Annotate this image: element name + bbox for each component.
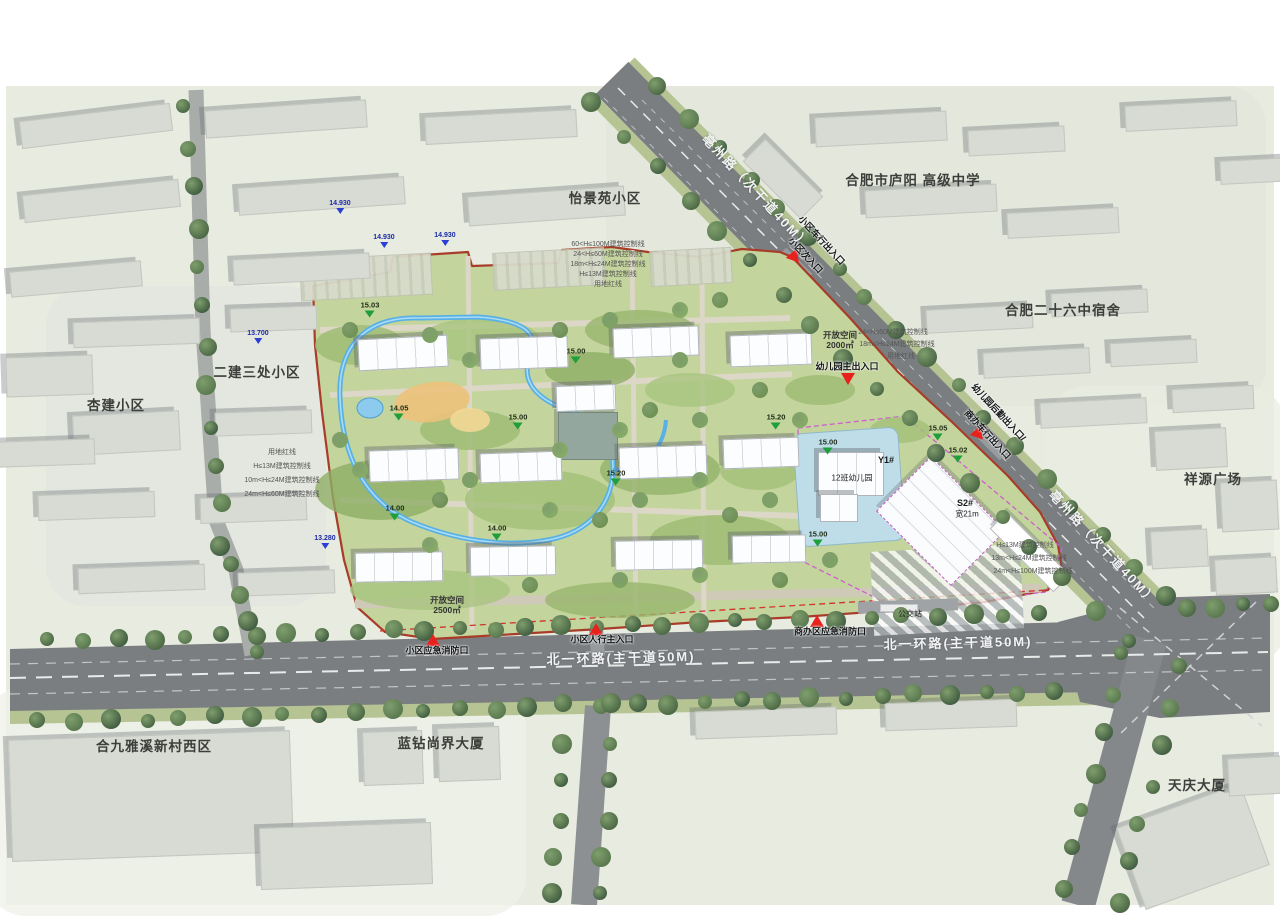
street-tree [698, 695, 712, 709]
street-tree [453, 621, 467, 635]
street-tree [870, 382, 884, 396]
elevation-marker-blue: 14.930 [329, 200, 350, 214]
elevation-marker-blue: 13.700 [247, 330, 268, 344]
road-name-label: 北一环路(主干道50M) [546, 646, 695, 668]
elevation-value: 15.00 [809, 531, 828, 539]
elevation-marker-blue: 14.930 [373, 234, 394, 248]
street-tree [679, 109, 699, 129]
context-building [237, 569, 335, 596]
elevation-marker-green: 15.03 [361, 302, 380, 318]
street-tree [462, 472, 478, 488]
street-tree [591, 847, 611, 867]
street-tree [756, 614, 772, 630]
street-tree [1236, 597, 1250, 611]
street-tree [1105, 687, 1121, 703]
street-tree [1171, 658, 1187, 674]
street-tree [996, 609, 1010, 623]
area-label: 合九雅溪新村西区 [96, 735, 212, 755]
plan-annotation: 公交站 [898, 609, 922, 620]
area-label: 祥源广场 [1184, 468, 1242, 488]
elevation-value: 15.00 [509, 414, 528, 422]
plan-annotation: Y1# [878, 455, 894, 465]
street-tree [432, 492, 448, 508]
plan-annotation: 13m<H≤24M建筑控制线 [991, 553, 1066, 563]
elevation-marker-green: 15.20 [767, 414, 786, 430]
street-tree [542, 883, 562, 903]
street-tree [551, 615, 571, 635]
street-tree [352, 462, 368, 478]
context-building [982, 347, 1090, 379]
plan-annotation: 2500㎡ [433, 604, 460, 616]
playground-area-small [450, 408, 490, 432]
residential-building [480, 451, 563, 484]
residential-building [479, 335, 568, 370]
street-tree [213, 494, 231, 512]
residential-building [470, 545, 557, 576]
site-plan-page: 15.0315.0014.0515.0014.0014.0015.2015.20… [0, 0, 1280, 905]
street-tree [332, 432, 348, 448]
context-building [0, 438, 95, 467]
street-tree [629, 694, 647, 712]
street-tree [210, 536, 230, 556]
street-tree [672, 302, 688, 318]
context-building [1109, 339, 1197, 368]
street-tree [208, 458, 224, 474]
elevation-triangle-icon [813, 539, 823, 546]
street-tree [728, 613, 742, 627]
elevation-value: 13.280 [314, 535, 335, 542]
elevation-value: 15.02 [949, 447, 968, 455]
elevation-marker-green: 14.05 [390, 405, 409, 421]
street-tree [250, 645, 264, 659]
plan-annotation: 宽21m [955, 509, 979, 520]
street-tree [762, 492, 778, 508]
street-tree [1114, 646, 1128, 660]
street-tree [692, 567, 708, 583]
street-tree [101, 709, 121, 729]
elevation-marker-green: 15.00 [509, 414, 528, 430]
street-tree [712, 292, 728, 308]
elevation-triangle-icon [394, 413, 404, 420]
elevation-marker-blue: 14.930 [434, 232, 455, 246]
elevation-value: 14.00 [386, 505, 405, 513]
elevation-value: 15.03 [361, 302, 380, 310]
street-tree [856, 289, 872, 305]
street-tree [653, 617, 671, 635]
street-tree [707, 221, 727, 241]
plan-annotation: S2# [957, 498, 973, 508]
area-label: 杏建小区 [87, 394, 145, 414]
entrance-label: 商办区应急消防口 [794, 625, 866, 638]
street-tree [752, 382, 768, 398]
street-tree [1110, 893, 1130, 913]
elevation-value: 14.930 [373, 234, 394, 241]
context-building [1171, 385, 1254, 413]
street-tree [522, 577, 538, 593]
context-building [37, 491, 155, 521]
street-tree [552, 322, 568, 338]
street-tree [960, 473, 980, 493]
context-building [5, 354, 93, 397]
street-tree [213, 626, 229, 642]
elevation-triangle-icon [571, 356, 581, 363]
street-tree [1263, 596, 1279, 612]
street-tree [552, 442, 568, 458]
elevation-value: 15.20 [607, 470, 626, 478]
street-tree [822, 552, 838, 568]
plan-annotation: 12班幼儿园 [832, 473, 873, 484]
street-tree [553, 813, 569, 829]
street-tree [601, 693, 621, 713]
street-tree [692, 472, 708, 488]
elevation-value: 14.930 [434, 232, 455, 239]
street-tree [170, 710, 186, 726]
entrance-label: 小区应急消防口 [405, 644, 468, 657]
elevation-triangle-icon [365, 310, 375, 317]
street-tree [517, 697, 537, 717]
context-building [1154, 427, 1228, 471]
street-tree [642, 402, 658, 418]
elevation-triangle-icon [336, 208, 344, 214]
elevation-marker-green: 15.02 [949, 447, 968, 463]
street-tree [1086, 764, 1106, 784]
elevation-triangle-icon [953, 455, 963, 462]
context-building [259, 822, 433, 890]
context-building [1219, 157, 1280, 185]
context-building [1227, 756, 1280, 797]
elevation-triangle-icon [933, 433, 943, 440]
street-tree [223, 556, 239, 572]
street-tree [231, 586, 249, 604]
context-building [214, 409, 312, 436]
residential-building [355, 551, 444, 583]
residential-building [732, 534, 806, 563]
street-tree [185, 177, 203, 195]
elevation-marker-green: 14.00 [488, 525, 507, 541]
area-label: 合肥市庐阳 高级中学 [845, 169, 980, 189]
residential-building [722, 437, 799, 470]
street-tree [1009, 686, 1025, 702]
area-label: 合肥二十六中宿舍 [1005, 299, 1121, 319]
elevation-marker-green: 15.00 [819, 439, 838, 455]
residential-building [368, 447, 459, 482]
plan-annotation: 24m<H≤60M建筑控制线 [244, 489, 319, 499]
area-label: 天庆大厦 [1168, 774, 1226, 794]
elevation-marker-green: 15.00 [567, 348, 586, 364]
context-building [72, 318, 200, 348]
residential-building [613, 326, 700, 359]
elevation-value: 15.00 [819, 439, 838, 447]
elevation-marker-green: 15.05 [929, 425, 948, 441]
elevation-value: 14.05 [390, 405, 409, 413]
street-tree [204, 421, 218, 435]
context-building [77, 564, 205, 594]
street-tree [593, 886, 607, 900]
street-tree [141, 714, 155, 728]
street-tree [1095, 723, 1113, 741]
context-building [967, 125, 1065, 156]
area-label: 蓝钻尚界大厦 [398, 732, 485, 752]
street-tree [772, 572, 788, 588]
street-tree [1031, 605, 1047, 621]
street-tree [801, 316, 819, 334]
street-tree [422, 327, 438, 343]
elevation-marker-green: 15.20 [607, 470, 626, 486]
street-tree [672, 352, 688, 368]
street-tree [1037, 469, 1057, 489]
street-tree [554, 694, 572, 712]
elevation-marker-green: 14.00 [386, 505, 405, 521]
street-tree [180, 141, 196, 157]
elevation-value: 14.00 [488, 525, 507, 533]
elevation-triangle-icon [823, 447, 833, 454]
plan-annotation: 60<H≤100M建筑控制线 [571, 239, 644, 249]
street-tree [275, 707, 289, 721]
street-tree [199, 338, 217, 356]
elevation-triangle-icon [254, 338, 262, 344]
street-tree [792, 412, 808, 428]
plan-annotation: H≤13M建筑控制线 [253, 461, 311, 471]
street-tree [689, 613, 709, 633]
entrance-label: 小区人行主入口 [570, 633, 633, 646]
street-tree [692, 412, 708, 428]
street-tree [194, 297, 210, 313]
elevation-triangle-icon [380, 242, 388, 248]
street-tree [1045, 682, 1063, 700]
street-tree [1152, 735, 1172, 755]
street-tree [722, 507, 738, 523]
street-tree [488, 701, 506, 719]
plan-annotation: 24<H≤60M建筑控制线 [858, 327, 927, 337]
street-tree [1146, 780, 1160, 794]
street-tree [625, 616, 641, 632]
context-building [1150, 529, 1209, 570]
entrance-triangle-icon [841, 373, 855, 385]
street-tree [178, 630, 192, 644]
plan-annotation: 用地红线 [268, 447, 296, 457]
street-tree [65, 713, 83, 731]
street-tree [40, 632, 54, 646]
street-tree [592, 512, 608, 528]
elevation-value: 14.930 [329, 200, 350, 207]
elevation-triangle-icon [492, 533, 502, 540]
street-tree [617, 130, 631, 144]
street-tree [544, 848, 562, 866]
street-tree [176, 99, 190, 113]
elevation-triangle-icon [611, 478, 621, 485]
residential-building [615, 539, 704, 571]
street-tree [929, 608, 947, 626]
road-name-label: 北一环路(主干道50M) [883, 631, 1032, 653]
street-tree [462, 352, 478, 368]
pond [357, 398, 383, 418]
context-building [1214, 556, 1278, 595]
street-tree [612, 422, 628, 438]
street-tree [658, 695, 678, 715]
street-tree [242, 707, 262, 727]
plan-annotation: 用地红线 [887, 351, 915, 361]
street-tree [632, 492, 648, 508]
area-label: 怡景苑小区 [569, 187, 642, 207]
plan-annotation: 2000㎡ [826, 339, 853, 351]
street-tree [342, 322, 358, 338]
street-tree [648, 77, 666, 95]
context-building [229, 305, 317, 332]
residential-building [729, 333, 812, 368]
street-tree [600, 812, 618, 830]
street-tree [189, 219, 209, 239]
elevation-value: 15.20 [767, 414, 786, 422]
street-tree [682, 192, 700, 210]
street-tree [964, 604, 984, 624]
street-tree [1120, 852, 1138, 870]
plan-annotation: H≤13M建筑控制线 [579, 269, 637, 279]
plan-annotation: 24<H≤60M建筑控制线 [573, 249, 642, 259]
elevation-value: 15.00 [567, 348, 586, 356]
elevation-triangle-icon [441, 240, 449, 246]
street-tree [1055, 880, 1073, 898]
street-tree [29, 712, 45, 728]
context-building [695, 707, 838, 740]
street-tree [763, 692, 781, 710]
plan-annotation: H≤13M建筑控制线 [996, 540, 1054, 550]
elevation-value: 13.700 [247, 330, 268, 337]
street-tree [602, 312, 618, 328]
street-tree [612, 572, 628, 588]
street-tree [776, 287, 792, 303]
street-tree [650, 158, 666, 174]
street-tree [581, 92, 601, 112]
plan-annotation: 18m<H≤24M建筑控制线 [570, 259, 645, 269]
street-tree [1178, 599, 1196, 617]
street-tree [734, 691, 750, 707]
elevation-triangle-icon [513, 422, 523, 429]
street-tree [190, 260, 204, 274]
elevation-triangle-icon [390, 513, 400, 520]
plan-annotation: 10m<H≤24M建筑控制线 [244, 475, 319, 485]
elevation-triangle-icon [771, 422, 781, 429]
elevation-marker-blue: 13.280 [314, 535, 335, 549]
elevation-value: 15.05 [929, 425, 948, 433]
plan-annotation: 24m<H≤100M建筑控制线 [993, 566, 1072, 576]
plan-annotation: 18m<H≤24M建筑控制线 [859, 339, 934, 349]
kindergarten-building-wing [820, 494, 858, 522]
elevation-marker-green: 15.00 [809, 531, 828, 547]
elevation-triangle-icon [321, 543, 329, 549]
street-tree [206, 706, 224, 724]
street-tree [542, 502, 558, 518]
plan-annotation: 用地红线 [594, 279, 622, 289]
area-label: 二建三处小区 [214, 361, 301, 381]
context-building [1039, 397, 1147, 429]
entrance-label: 幼儿园主出入口 [815, 360, 878, 373]
street-tree [1074, 803, 1088, 817]
street-tree [1086, 601, 1106, 621]
street-tree [422, 537, 438, 553]
residential-building [556, 384, 617, 412]
